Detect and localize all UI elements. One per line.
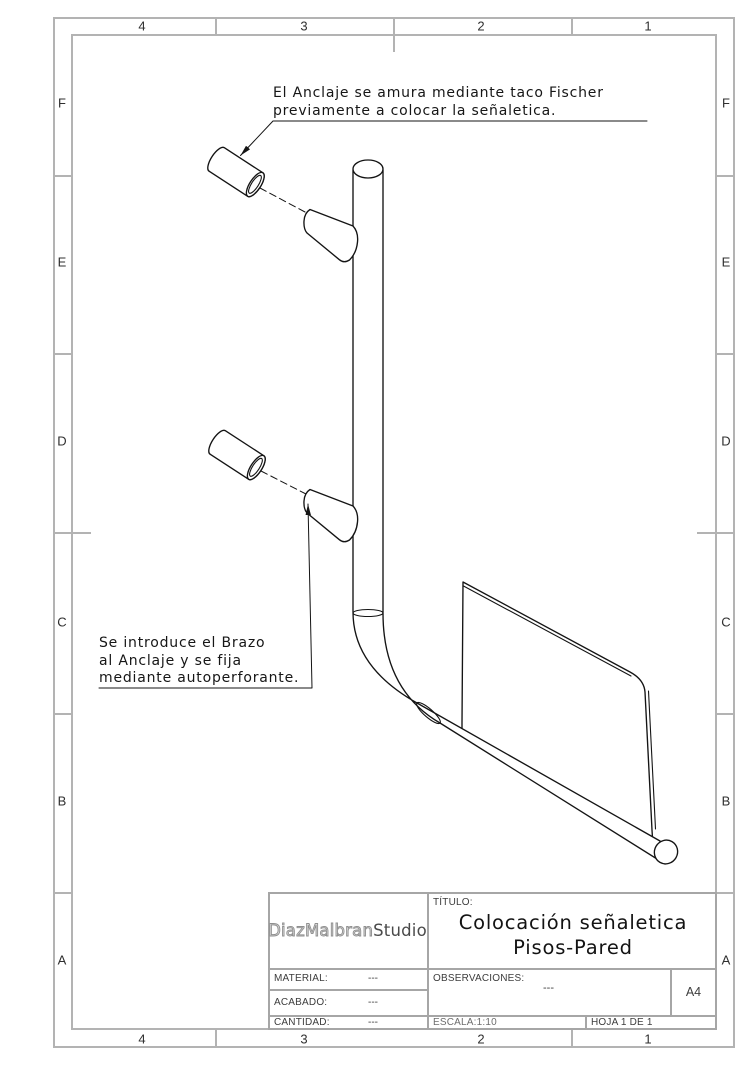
anchor-note-line1: El Anclaje se amura mediante taco Fische… (273, 85, 604, 103)
material-value: --- (368, 973, 378, 984)
drawing-sheet: 4 3 2 1 4 3 2 1 F E D C B A F E D C B A (0, 0, 754, 1066)
wall-anchor-top (204, 145, 267, 200)
title-block: DiazMalbranStudio TÍTULO: Colocación señ… (268, 892, 717, 1030)
logo-part2: Studio (373, 921, 427, 940)
cantidad-label: CANTIDAD: (274, 1017, 330, 1028)
post-top-cap (353, 160, 383, 178)
acabado-value: --- (368, 997, 378, 1008)
drawing-title-line1: Colocación señaletica (429, 910, 717, 935)
arm-note-line3: mediante autoperforante. (99, 670, 299, 688)
logo-part1: DiazMalbran (268, 921, 373, 940)
anchor-arm-bottom (304, 490, 358, 542)
anchor-note: El Anclaje se amura mediante taco Fische… (273, 85, 604, 120)
drawing-title-line2: Pisos-Pared (429, 935, 717, 960)
acabado-label: ACABADO: (274, 997, 327, 1008)
arm-note: Se introduce el Brazo al Anclaje y se fi… (99, 635, 299, 688)
titulo-label: TÍTULO: (433, 897, 473, 908)
company-logo: DiazMalbranStudio (268, 892, 427, 968)
paper-size-label: A4 (670, 968, 717, 1015)
leader-anchor-note (241, 121, 648, 156)
drawing-title: Colocación señaletica Pisos-Pared (429, 910, 717, 960)
cantidad-value: --- (368, 1017, 378, 1028)
escala-label: ESCALA:1:10 (433, 1017, 497, 1028)
assembly-dashed-line-bottom (261, 471, 306, 494)
observaciones-value: --- (427, 982, 670, 994)
anchor-arm-top (304, 210, 358, 262)
anchor-note-line2: previamente a colocar la señaletica. (273, 103, 604, 121)
hoja-label: HOJA 1 DE 1 (591, 1017, 653, 1028)
wall-anchor-bottom (205, 428, 268, 483)
material-label: MATERIAL: (274, 973, 328, 984)
arm-note-line1: Se introduce el Brazo (99, 635, 299, 653)
arm-note-line2: al Anclaje y se fija (99, 653, 299, 671)
sign-panel (462, 582, 656, 838)
assembly-dashed-line-top (260, 188, 305, 212)
